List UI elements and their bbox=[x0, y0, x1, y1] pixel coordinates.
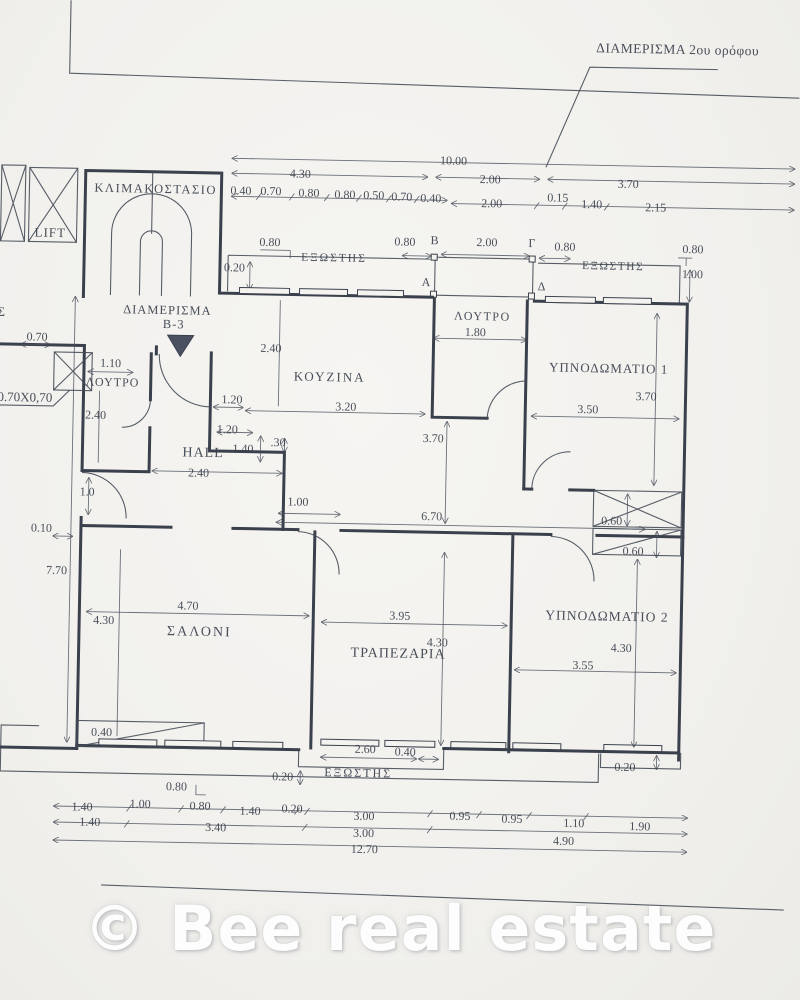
floorplan-drawing bbox=[0, 0, 800, 1000]
dim-label: 0.50 bbox=[363, 188, 384, 203]
column-size-label: 0.70X0,70 bbox=[0, 389, 52, 406]
dim-label: 3.70 bbox=[617, 177, 638, 192]
dim-label: 3.50 bbox=[577, 402, 598, 417]
edge-partial-label: ΟΣ bbox=[0, 304, 5, 320]
dim-label: 3.70 bbox=[423, 431, 444, 446]
dim-label: 2.60 bbox=[355, 742, 376, 757]
dim-label: 0.70 bbox=[391, 189, 412, 204]
room-label-balcony-top-left: ΕΞΩΣΤΗΣ bbox=[301, 252, 367, 265]
dim-label: 3.95 bbox=[389, 608, 410, 623]
room-label-bath-left: ΛΟΥΤΡΟ bbox=[86, 375, 140, 391]
dim-label: 4.30 bbox=[290, 166, 311, 181]
dim-label: 1.40 bbox=[581, 197, 602, 212]
dim-label: 4.30 bbox=[93, 613, 114, 628]
dim-label: 7.70 bbox=[46, 563, 67, 578]
dim-label: 12.70 bbox=[351, 842, 378, 858]
dim-label: 1.10 bbox=[563, 816, 584, 831]
dim-label: 1.20 bbox=[221, 392, 242, 407]
dim-label: 0.20 bbox=[281, 801, 302, 816]
room-label-bath-top: ΛΟΥΤΡΟ bbox=[454, 309, 511, 325]
dim-label: 0.20 bbox=[614, 760, 635, 775]
dim-label: 3.70 bbox=[635, 389, 656, 404]
room-label-living: ΣΑΛΟΝΙ bbox=[167, 624, 232, 641]
dim-label: 1.90 bbox=[629, 819, 650, 834]
floorplan-scan: ΔΙΑΜΕΡΙΣΜΑ 2ου ορόφου ΟΣ ΚΛΙΜΑΚΟΣΤΑΣΙΟ L… bbox=[0, 0, 800, 1000]
page-title: ΔΙΑΜΕΡΙΣΜΑ 2ου ορόφου bbox=[596, 40, 759, 59]
dim-label: 0.70 bbox=[26, 329, 47, 344]
dim-label: 0.20 bbox=[272, 769, 293, 784]
dim-label: 0.40 bbox=[91, 725, 112, 740]
dim-label: 4.90 bbox=[553, 834, 574, 849]
door-arcs bbox=[80, 353, 598, 582]
dim-label: 2.15 bbox=[645, 200, 666, 215]
apartment-label-line2: Β-3 bbox=[163, 317, 185, 332]
dim-label: 2.00 bbox=[481, 196, 502, 211]
dim-label: 0.80 bbox=[189, 799, 210, 814]
window-symbols bbox=[99, 285, 671, 756]
dim-label: 1.40 bbox=[79, 814, 100, 829]
room-label-bedroom1: ΥΠΝΟΔΩΜΑΤΙΟ 1 bbox=[549, 359, 668, 377]
floorplan-tilted-group: ΔΙΑΜΕΡΙΣΜΑ 2ου ορόφου ΟΣ ΚΛΙΜΑΚΟΣΤΑΣΙΟ L… bbox=[0, 0, 800, 1000]
point-label-a: A bbox=[422, 275, 431, 290]
dim-label: 0.95 bbox=[449, 809, 470, 824]
dim-label: 3.00 bbox=[353, 826, 374, 841]
dim-label: 2.40 bbox=[260, 341, 281, 356]
dim-label: 6.70 bbox=[421, 509, 442, 524]
dim-label: 4.70 bbox=[177, 598, 198, 613]
point-label-gamma: Γ bbox=[528, 236, 535, 251]
dim-label: 2.40 bbox=[85, 408, 106, 423]
dim-label: 3.00 bbox=[353, 809, 374, 824]
watermark: © Bee real estate bbox=[84, 892, 717, 965]
dim-label: 1.0 bbox=[79, 484, 94, 499]
dim-label: 1.00 bbox=[130, 796, 151, 811]
dim-label: 0.10 bbox=[31, 521, 52, 536]
dim-label: 1.40 bbox=[71, 799, 92, 814]
dim-label: 0.80 bbox=[166, 779, 187, 794]
dim-label: 2.40 bbox=[188, 466, 209, 481]
dim-label: 0.80 bbox=[334, 187, 355, 202]
apartment-position-marker bbox=[167, 335, 193, 356]
room-label-balcony-bottom: ΕΞΩΣΤΗΣ bbox=[324, 765, 392, 781]
dim-label: 0.80 bbox=[682, 242, 703, 257]
dim-label: 1.00 bbox=[682, 267, 703, 282]
dim-label: 1.40 bbox=[239, 804, 260, 819]
dim-label: 0.80 bbox=[554, 240, 575, 255]
dim-label: 0.15 bbox=[547, 190, 568, 205]
dim-label: 0.60 bbox=[622, 544, 643, 559]
dim-top-total: 10.00 bbox=[440, 153, 467, 169]
dim-label: 3.40 bbox=[205, 820, 226, 835]
dim-label: 0.80 bbox=[298, 186, 319, 201]
dim-label: 0.95 bbox=[501, 812, 522, 827]
dim-label: 0.80 bbox=[259, 235, 280, 250]
title-leader-line bbox=[546, 66, 718, 170]
dim-label: 3.20 bbox=[335, 399, 356, 414]
dim-label: 2.00 bbox=[476, 235, 497, 250]
dim-label: 0.40 bbox=[230, 183, 251, 198]
dim-label: 0.80 bbox=[394, 234, 415, 249]
room-label-bedroom2: ΥΠΝΟΔΩΜΑΤΙΟ 2 bbox=[545, 607, 669, 625]
dim-label: 0.70 bbox=[260, 184, 281, 199]
point-label-b: B bbox=[430, 233, 438, 248]
dim-label: 1.40 bbox=[232, 441, 253, 456]
room-label-dining: ΤΡΑΠΕΖΑΡΙΑ bbox=[350, 646, 445, 664]
room-label-balcony-top-right: ΕΞΩΣΤΗΣ bbox=[582, 260, 644, 273]
dim-label: 1.80 bbox=[465, 325, 486, 340]
room-label-stairwell: ΚΛΙΜΑΚΟΣΤΑΣΙΟ bbox=[94, 181, 217, 198]
dim-label: 0.20 bbox=[224, 260, 245, 275]
dim-label: .30 bbox=[270, 435, 285, 450]
point-label-delta: Δ bbox=[538, 279, 546, 294]
dim-label: 1.10 bbox=[100, 356, 121, 371]
dim-label: 0.40 bbox=[395, 745, 416, 760]
room-label-hall: HALL bbox=[182, 445, 224, 462]
room-label-kitchen: ΚΟΥΖΙΝΑ bbox=[294, 369, 366, 386]
dim-label: 1.00 bbox=[287, 494, 308, 509]
dim-label: 0.40 bbox=[420, 191, 441, 206]
dim-label: 1.20 bbox=[217, 422, 238, 437]
dim-label: 3.55 bbox=[572, 658, 593, 673]
room-label-lift: LIFT bbox=[34, 225, 66, 242]
hatched-entry-slab bbox=[434, 257, 533, 297]
dim-label: 0.60 bbox=[601, 513, 622, 528]
dim-label: 4.30 bbox=[611, 641, 632, 656]
dim-label: 2.00 bbox=[480, 172, 501, 187]
